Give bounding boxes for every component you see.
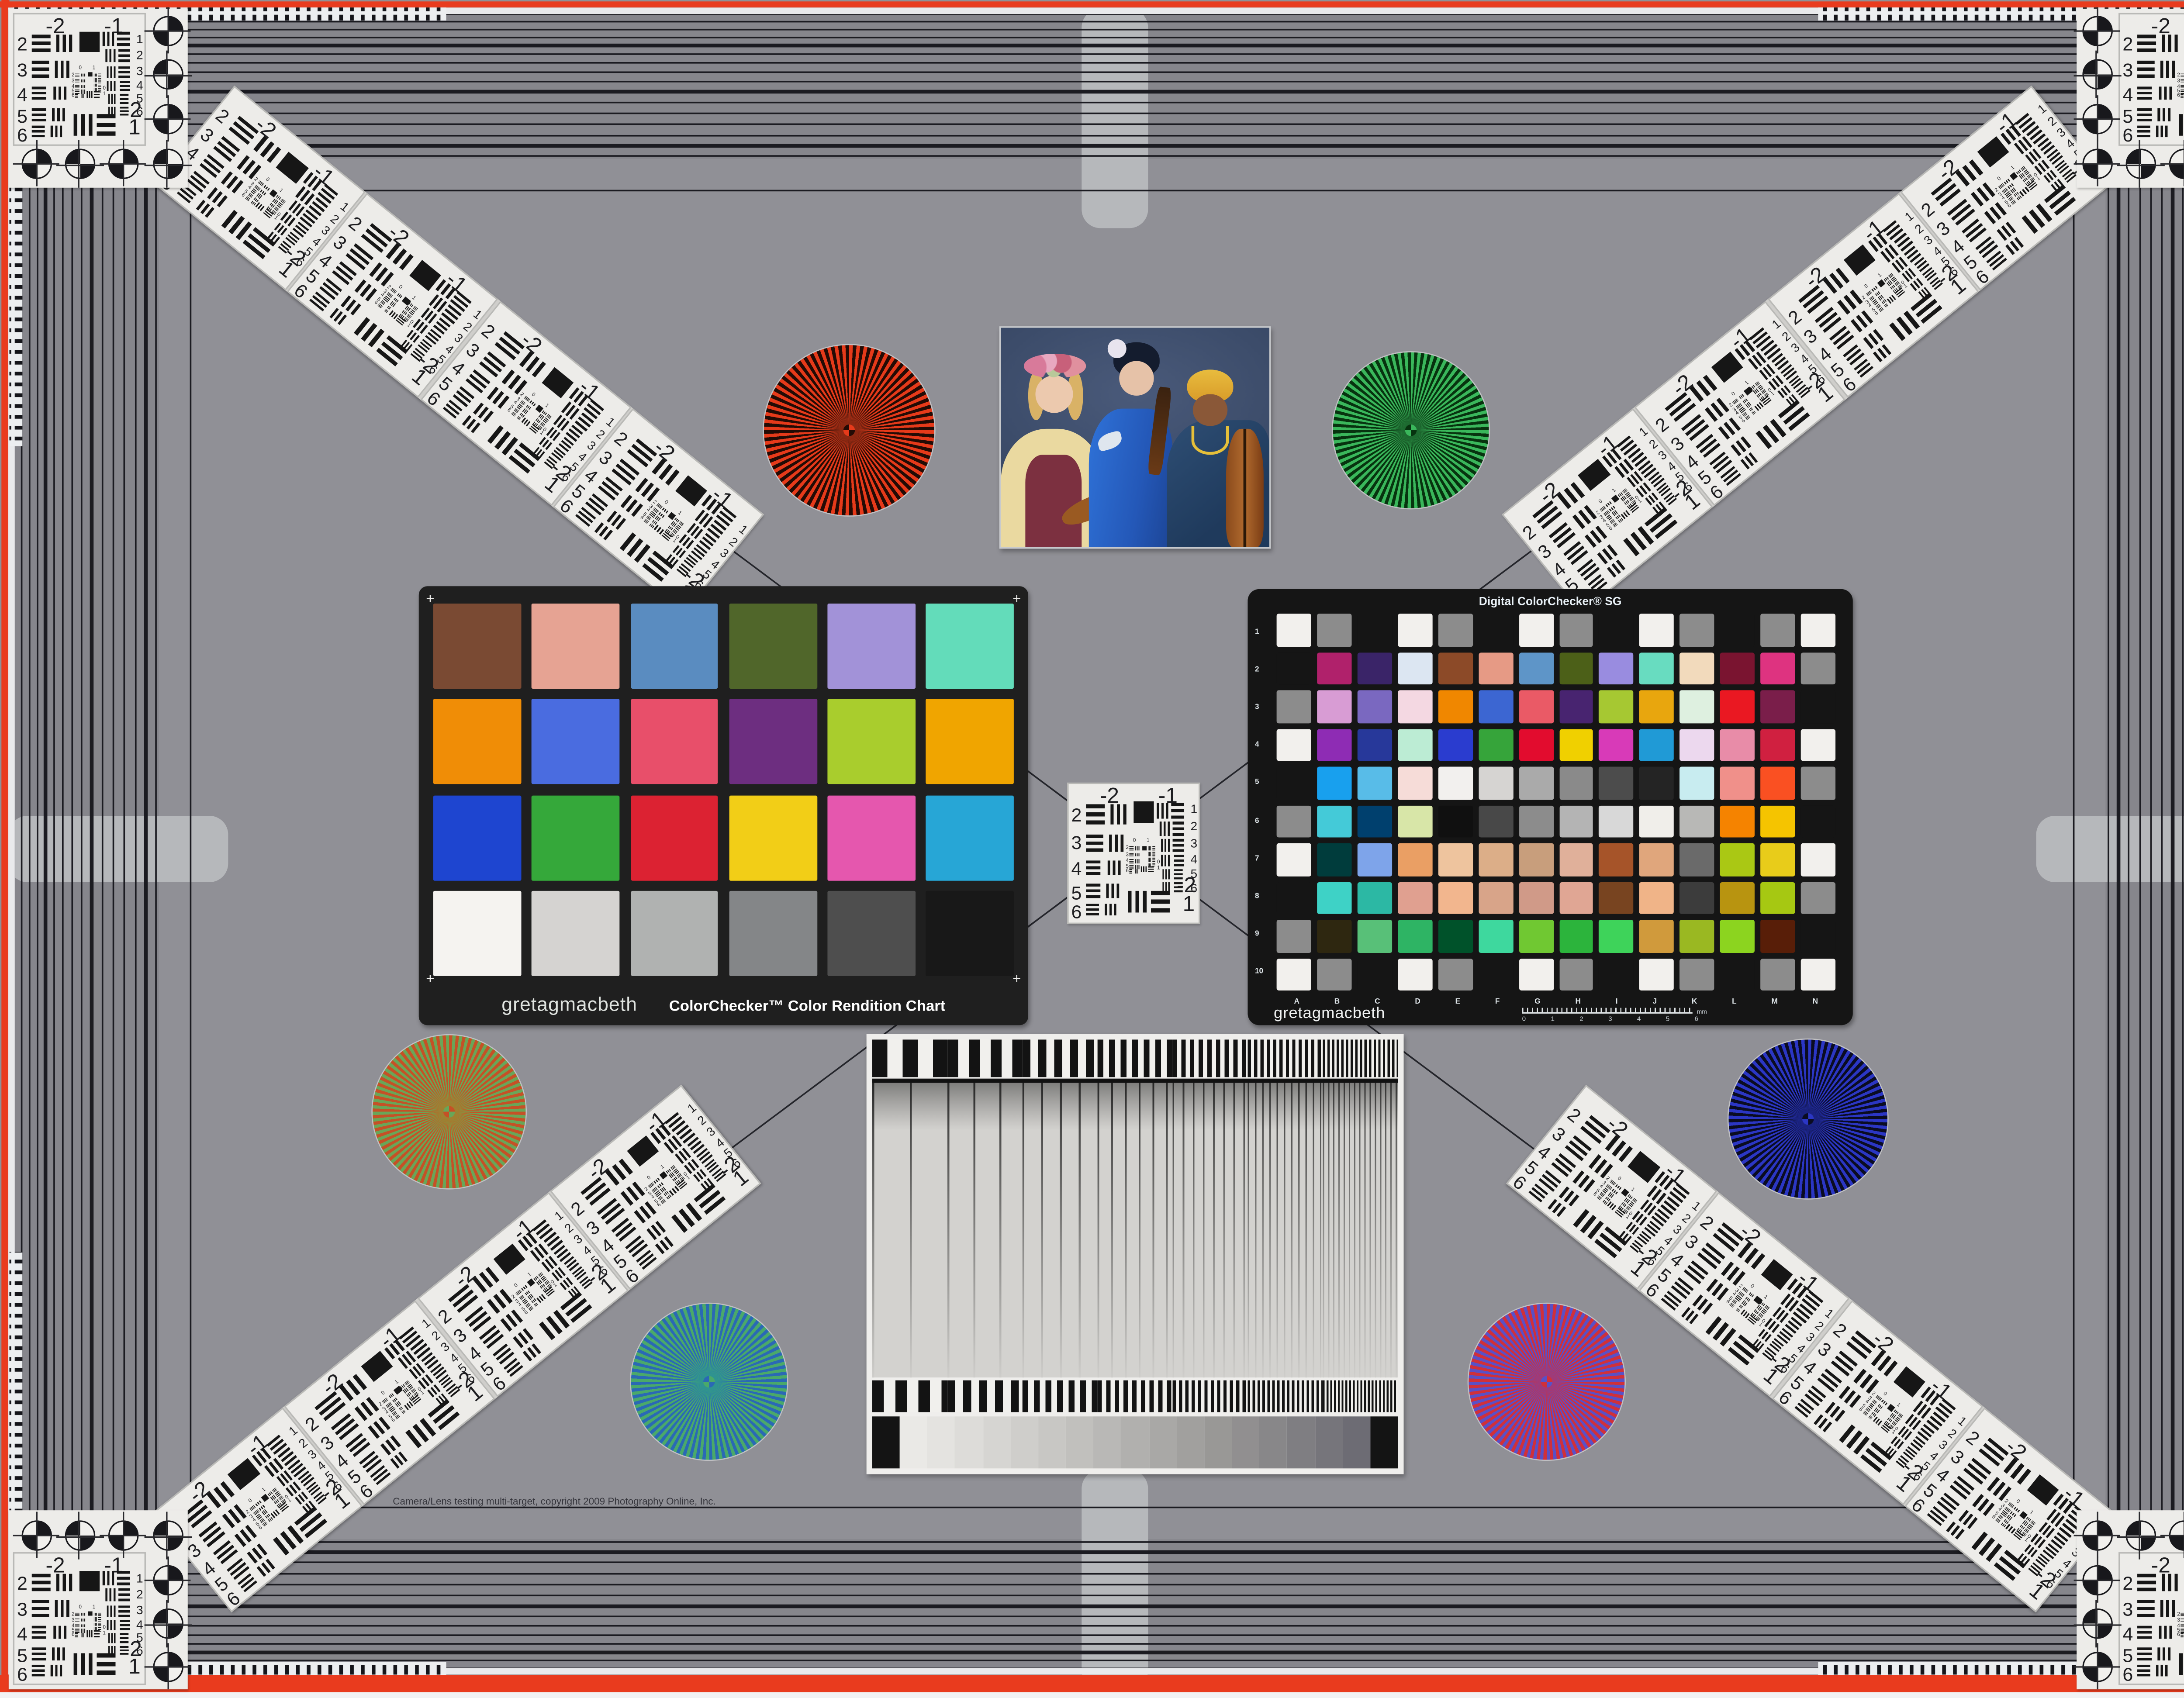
colorchecker-brand: gretagmacbeth bbox=[501, 994, 637, 1015]
color-patch bbox=[1357, 728, 1392, 761]
color-patch bbox=[1315, 1416, 1342, 1468]
label: 9 bbox=[1255, 929, 1263, 938]
color-patch bbox=[1398, 843, 1432, 876]
copyright-text: Camera/Lens testing multi-target, copyri… bbox=[393, 1497, 715, 1507]
label: 4 bbox=[1637, 1015, 1641, 1022]
color-patch bbox=[1277, 805, 1311, 837]
color-patch bbox=[1801, 843, 1835, 876]
color-patch bbox=[1640, 920, 1674, 952]
registration-plus-icon: + bbox=[1013, 594, 1021, 608]
color-patch bbox=[1559, 843, 1593, 876]
color-patch bbox=[1478, 614, 1513, 646]
color-patch bbox=[1204, 1416, 1232, 1468]
color-patch bbox=[1519, 805, 1553, 837]
color-patch bbox=[1599, 767, 1634, 799]
burst-center-icon bbox=[443, 1106, 455, 1117]
color-patch bbox=[1680, 652, 1714, 684]
color-patch bbox=[1640, 767, 1674, 799]
color-patch bbox=[827, 604, 915, 689]
color-patch bbox=[1599, 690, 1634, 722]
color-patch bbox=[1438, 614, 1472, 646]
color-patch bbox=[1277, 652, 1311, 684]
color-patch bbox=[1640, 728, 1674, 761]
quadrant-circle-icon bbox=[152, 1520, 183, 1550]
color-patch bbox=[1680, 805, 1714, 837]
color-patch bbox=[729, 891, 817, 976]
label: 10 bbox=[1255, 967, 1263, 976]
color-patch bbox=[1680, 728, 1714, 761]
color-patch bbox=[1559, 920, 1593, 952]
color-patch bbox=[1801, 920, 1835, 952]
corner-marker-top-left: -2-123456123456-21012345601 bbox=[9, 9, 188, 188]
color-patch bbox=[1121, 1416, 1149, 1468]
color-patch bbox=[1720, 728, 1755, 761]
color-patch bbox=[1478, 767, 1513, 799]
burst-center-icon bbox=[843, 424, 855, 436]
color-patch bbox=[1478, 805, 1513, 837]
starburst-teal bbox=[631, 1304, 787, 1460]
color-patch bbox=[1559, 690, 1593, 722]
color-patch bbox=[1317, 920, 1351, 952]
label: 2 bbox=[1255, 666, 1263, 675]
grayscale-sweep-chart bbox=[867, 1034, 1404, 1474]
color-patch bbox=[1357, 881, 1392, 914]
color-patch bbox=[1478, 652, 1513, 684]
quadrant-circle-icon bbox=[2125, 148, 2155, 178]
color-patch bbox=[1640, 881, 1674, 914]
label: 3 bbox=[1255, 704, 1263, 712]
color-patch bbox=[1038, 1416, 1066, 1468]
ruler-ticks-icon bbox=[1522, 1007, 1693, 1014]
burst-center-icon bbox=[703, 1376, 715, 1387]
color-patch bbox=[1357, 652, 1392, 684]
color-patch bbox=[872, 1416, 900, 1468]
color-patch bbox=[1720, 614, 1755, 646]
color-patch bbox=[1599, 920, 1634, 952]
color-patch bbox=[1357, 958, 1392, 990]
quadrant-circle-icon bbox=[2082, 1520, 2112, 1550]
center-resolution-target: -2-123456123456-21012345601 bbox=[1067, 783, 1200, 924]
color-patch bbox=[1519, 614, 1553, 646]
label: I bbox=[1616, 998, 1618, 1007]
label: 8 bbox=[1255, 892, 1263, 901]
color-patch bbox=[1438, 728, 1472, 761]
color-patch bbox=[983, 1416, 1010, 1468]
corner-resolution-target: -2-123456123456-21012345601 bbox=[13, 1552, 146, 1685]
color-patch bbox=[1177, 1416, 1204, 1468]
color-patch bbox=[955, 1416, 983, 1468]
color-patch bbox=[1720, 805, 1755, 837]
color-patch bbox=[1519, 728, 1553, 761]
color-patch bbox=[1478, 881, 1513, 914]
color-patch bbox=[1720, 958, 1755, 990]
color-patch bbox=[1559, 958, 1593, 990]
color-patch bbox=[1357, 767, 1392, 799]
color-patch bbox=[1277, 690, 1311, 722]
color-patch bbox=[532, 891, 619, 976]
label: 6 bbox=[1695, 1015, 1698, 1022]
color-patch bbox=[1761, 690, 1795, 722]
color-patch bbox=[1438, 690, 1472, 722]
color-patch bbox=[928, 1416, 955, 1468]
label: M bbox=[1771, 998, 1777, 1007]
color-patch bbox=[1438, 958, 1472, 990]
color-patch bbox=[1317, 881, 1351, 914]
color-patch bbox=[1277, 767, 1311, 799]
color-patch bbox=[1761, 805, 1795, 837]
label: 0 bbox=[1522, 1015, 1526, 1022]
label: 1 bbox=[1551, 1015, 1554, 1022]
sg-mm-ruler: 0123456 mm bbox=[1522, 1007, 1707, 1022]
color-patch bbox=[1317, 767, 1351, 799]
label: 7 bbox=[1255, 854, 1263, 863]
label: 5 bbox=[1255, 779, 1263, 787]
color-patch bbox=[1011, 1416, 1038, 1468]
color-patch bbox=[729, 604, 817, 689]
color-patch bbox=[827, 699, 915, 784]
quadrant-circle-icon bbox=[2082, 1651, 2112, 1681]
color-patch bbox=[1640, 690, 1674, 722]
color-patch bbox=[926, 699, 1014, 784]
color-patch bbox=[532, 604, 619, 689]
color-patch bbox=[1519, 843, 1553, 876]
color-patch bbox=[926, 604, 1014, 689]
color-patch bbox=[1761, 881, 1795, 914]
cello-icon bbox=[1227, 429, 1264, 547]
color-patch bbox=[630, 795, 718, 880]
colorchecker-sg-chart: Digital ColorChecker® SG 12345678910 ABC… bbox=[1248, 589, 1852, 1025]
burst-center-icon bbox=[1405, 424, 1417, 436]
color-patch bbox=[1478, 843, 1513, 876]
frequency-sweep-area bbox=[872, 1082, 1398, 1377]
divider-line bbox=[872, 1079, 1398, 1083]
camera-lens-test-chart: -2-123456123456-21012345601-2-1234561234… bbox=[0, 0, 2184, 1698]
colorchecker-caption: gretagmacbethColorChecker™ Color Renditi… bbox=[419, 992, 1028, 1018]
quadrant-circle-icon bbox=[2082, 15, 2112, 45]
color-patch bbox=[1559, 805, 1593, 837]
color-patch bbox=[1357, 843, 1392, 876]
label: K bbox=[1692, 998, 1697, 1007]
color-patch bbox=[1720, 920, 1755, 952]
color-patch bbox=[1801, 805, 1835, 837]
color-patch bbox=[1640, 843, 1674, 876]
quadrant-circle-icon bbox=[2168, 148, 2184, 178]
color-patch bbox=[1599, 614, 1634, 646]
color-patch bbox=[729, 699, 817, 784]
color-patch bbox=[926, 795, 1014, 880]
starburst-red-blue bbox=[1469, 1304, 1624, 1460]
color-patch bbox=[1761, 920, 1795, 952]
color-patch bbox=[1720, 767, 1755, 799]
color-patch bbox=[1559, 614, 1593, 646]
color-patch bbox=[1398, 767, 1432, 799]
quadrant-circle-icon bbox=[64, 148, 94, 178]
corner-resolution-target: -2-123456123456-21012345601 bbox=[2118, 1552, 2184, 1685]
color-patch bbox=[1680, 881, 1714, 914]
color-patch bbox=[1519, 767, 1553, 799]
ruler-numbers: 0123456 bbox=[1522, 1015, 1698, 1022]
ruler-unit: mm bbox=[1697, 1007, 1707, 1015]
color-patch bbox=[1317, 728, 1351, 761]
color-patch bbox=[1277, 728, 1311, 761]
gray-step-wedge bbox=[872, 1416, 1398, 1468]
color-patch bbox=[1398, 614, 1432, 646]
sg-title: Digital ColorChecker® SG bbox=[1248, 595, 1852, 608]
color-patch bbox=[1559, 652, 1593, 684]
color-patch bbox=[1801, 728, 1835, 761]
color-patch bbox=[1801, 690, 1835, 722]
color-patch bbox=[1149, 1416, 1176, 1468]
color-patch bbox=[1357, 805, 1392, 837]
color-patch bbox=[1317, 652, 1351, 684]
burst-center-icon bbox=[1541, 1376, 1552, 1387]
color-patch bbox=[433, 891, 521, 976]
quadrant-circle-icon bbox=[152, 1651, 183, 1681]
color-patch bbox=[1801, 652, 1835, 684]
quadrant-circle-icon bbox=[21, 148, 51, 178]
color-patch bbox=[1720, 652, 1755, 684]
colorchecker-classic-chart: gretagmacbethColorChecker™ Color Renditi… bbox=[419, 586, 1028, 1025]
color-patch bbox=[1720, 843, 1755, 876]
color-patch bbox=[1599, 843, 1634, 876]
color-patch bbox=[1438, 881, 1472, 914]
color-patch bbox=[1277, 843, 1311, 876]
color-patch bbox=[1801, 614, 1835, 646]
corner-marker-top-right: -2-123456123456-21012345601 bbox=[2077, 9, 2184, 188]
color-patch bbox=[1680, 690, 1714, 722]
color-patch bbox=[827, 891, 915, 976]
color-patch bbox=[1801, 881, 1835, 914]
quadrant-circle-icon bbox=[2125, 1520, 2155, 1550]
color-patch bbox=[1680, 843, 1714, 876]
label: J bbox=[1652, 998, 1657, 1007]
color-patch bbox=[1640, 652, 1674, 684]
frequency-bars-top bbox=[872, 1039, 1398, 1077]
label: H bbox=[1576, 998, 1581, 1007]
quadrant-circle-icon bbox=[107, 148, 138, 178]
color-patch bbox=[1519, 652, 1553, 684]
starburst-red bbox=[764, 345, 934, 515]
color-patch bbox=[1761, 652, 1795, 684]
color-patch bbox=[1559, 728, 1593, 761]
color-patch bbox=[1680, 614, 1714, 646]
color-patch bbox=[630, 891, 718, 976]
color-patch bbox=[1398, 690, 1432, 722]
color-patch bbox=[1680, 958, 1714, 990]
color-patch bbox=[1559, 881, 1593, 914]
sg-patch-grid bbox=[1277, 614, 1835, 990]
label: 1 bbox=[1255, 628, 1263, 637]
label: L bbox=[1732, 998, 1736, 1007]
registration-plus-icon: + bbox=[1013, 973, 1021, 987]
label: D bbox=[1415, 998, 1420, 1007]
color-patch bbox=[1317, 843, 1351, 876]
color-patch bbox=[1232, 1416, 1259, 1468]
musician-right bbox=[1001, 328, 1269, 547]
color-patch bbox=[1357, 920, 1392, 952]
color-patch bbox=[1277, 881, 1311, 914]
color-patch bbox=[1640, 958, 1674, 990]
color-patch bbox=[1317, 690, 1351, 722]
color-patch bbox=[1343, 1416, 1370, 1468]
color-patch bbox=[1357, 614, 1392, 646]
musicians-photo bbox=[999, 326, 1271, 549]
quadrant-circle-icon bbox=[2082, 148, 2112, 178]
color-patch bbox=[630, 699, 718, 784]
quadrant-circle-icon bbox=[152, 15, 183, 45]
quadrant-circle-icon bbox=[152, 103, 183, 133]
color-patch bbox=[1398, 805, 1432, 837]
color-patch bbox=[1559, 767, 1593, 799]
color-patch bbox=[1260, 1416, 1287, 1468]
label: 3 bbox=[1608, 1015, 1612, 1022]
label: 5 bbox=[1666, 1015, 1669, 1022]
quadrant-circle-icon bbox=[2082, 1564, 2112, 1594]
color-patch bbox=[1519, 958, 1553, 990]
frequency-bars-bottom bbox=[872, 1380, 1398, 1412]
starburst-green bbox=[1333, 352, 1489, 508]
color-patch bbox=[1357, 690, 1392, 722]
sg-brand: gretagmacbeth bbox=[1274, 1005, 1386, 1022]
quadrant-circle-icon bbox=[152, 148, 183, 178]
color-patch bbox=[630, 604, 718, 689]
color-patch bbox=[1398, 881, 1432, 914]
color-patch bbox=[1438, 767, 1472, 799]
color-patch bbox=[1720, 881, 1755, 914]
color-patch bbox=[827, 795, 915, 880]
color-patch bbox=[1761, 614, 1795, 646]
label: 6 bbox=[1255, 817, 1263, 825]
burst-center-icon bbox=[1802, 1113, 1814, 1125]
color-patch bbox=[1761, 958, 1795, 990]
color-patch bbox=[1317, 958, 1351, 990]
quadrant-circle-icon bbox=[2082, 103, 2112, 133]
color-patch bbox=[1277, 958, 1311, 990]
color-patch bbox=[1599, 881, 1634, 914]
starburst-blue bbox=[1728, 1039, 1887, 1198]
color-patch bbox=[1801, 767, 1835, 799]
color-patch bbox=[1398, 958, 1432, 990]
colorchecker-patch-grid bbox=[433, 604, 1014, 976]
quadrant-circle-icon bbox=[152, 1608, 183, 1638]
color-patch bbox=[1599, 652, 1634, 684]
color-patch bbox=[1094, 1416, 1121, 1468]
color-patch bbox=[1680, 767, 1714, 799]
color-patch bbox=[900, 1416, 927, 1468]
corner-resolution-target: -2-123456123456-21012345601 bbox=[2118, 13, 2184, 146]
color-patch bbox=[1438, 805, 1472, 837]
quadrant-circle-icon bbox=[2082, 59, 2112, 89]
color-patch bbox=[1478, 728, 1513, 761]
corner-marker-bottom-right: -2-123456123456-21012345601 bbox=[2077, 1510, 2184, 1689]
quadrant-circle-icon bbox=[152, 59, 183, 89]
label: 2 bbox=[1579, 1015, 1583, 1022]
color-patch bbox=[1599, 728, 1634, 761]
color-patch bbox=[1438, 652, 1472, 684]
color-patch bbox=[729, 795, 817, 880]
colorchecker-title: ColorChecker™ Color Rendition Chart bbox=[669, 998, 946, 1015]
color-patch bbox=[433, 795, 521, 880]
color-patch bbox=[532, 795, 619, 880]
color-patch bbox=[1599, 958, 1634, 990]
color-patch bbox=[1398, 728, 1432, 761]
label: 4 bbox=[1255, 741, 1263, 750]
color-patch bbox=[1317, 805, 1351, 837]
color-patch bbox=[1801, 958, 1835, 990]
sg-row-labels: 12345678910 bbox=[1255, 614, 1263, 990]
color-patch bbox=[1761, 767, 1795, 799]
color-patch bbox=[1761, 843, 1795, 876]
quadrant-circle-icon bbox=[2082, 1608, 2112, 1638]
color-patch bbox=[1761, 728, 1795, 761]
quadrant-circle-icon bbox=[21, 1520, 51, 1550]
color-patch bbox=[1478, 690, 1513, 722]
label: E bbox=[1455, 998, 1460, 1007]
quadrant-circle-icon bbox=[2168, 1520, 2184, 1550]
color-patch bbox=[1438, 920, 1472, 952]
starburst-gold bbox=[373, 1035, 525, 1188]
color-patch bbox=[1640, 614, 1674, 646]
color-patch bbox=[1370, 1416, 1398, 1468]
color-patch bbox=[1398, 920, 1432, 952]
color-patch bbox=[1519, 690, 1553, 722]
corner-marker-bottom-left: -2-123456123456-21012345601 bbox=[9, 1510, 188, 1689]
color-patch bbox=[1519, 920, 1553, 952]
color-patch bbox=[1317, 614, 1351, 646]
registration-plus-icon: + bbox=[426, 594, 434, 608]
quadrant-circle-icon bbox=[107, 1520, 138, 1550]
color-patch bbox=[1640, 805, 1674, 837]
label: N bbox=[1813, 998, 1818, 1007]
label: G bbox=[1534, 998, 1540, 1007]
label: F bbox=[1495, 998, 1500, 1007]
corner-resolution-target: -2-123456123456-21012345601 bbox=[13, 13, 146, 146]
color-patch bbox=[1720, 690, 1755, 722]
color-patch bbox=[1519, 881, 1553, 914]
quadrant-circle-icon bbox=[152, 1564, 183, 1594]
color-patch bbox=[1478, 920, 1513, 952]
color-patch bbox=[1599, 805, 1634, 837]
color-patch bbox=[532, 699, 619, 784]
color-patch bbox=[1066, 1416, 1093, 1468]
registration-plus-icon: + bbox=[426, 973, 434, 987]
color-patch bbox=[1277, 614, 1311, 646]
color-patch bbox=[1277, 920, 1311, 952]
color-patch bbox=[1287, 1416, 1315, 1468]
color-patch bbox=[1680, 920, 1714, 952]
color-patch bbox=[1398, 652, 1432, 684]
color-patch bbox=[433, 699, 521, 784]
color-patch bbox=[1478, 958, 1513, 990]
quadrant-circle-icon bbox=[64, 1520, 94, 1550]
color-patch bbox=[926, 891, 1014, 976]
color-patch bbox=[1438, 843, 1472, 876]
color-patch bbox=[433, 604, 521, 689]
